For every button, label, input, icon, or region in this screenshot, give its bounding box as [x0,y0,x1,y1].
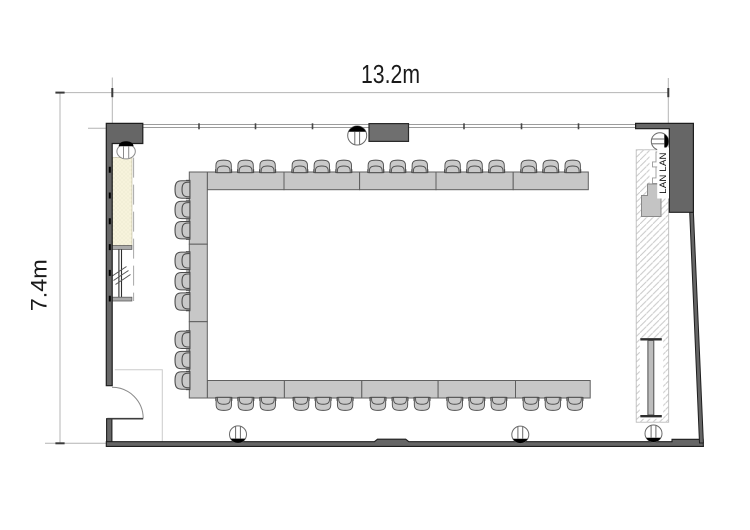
svg-text:13.2m: 13.2m [361,61,420,89]
svg-text:7.4m: 7.4m [27,259,52,311]
svg-text:LAN LAN: LAN LAN [658,152,669,193]
